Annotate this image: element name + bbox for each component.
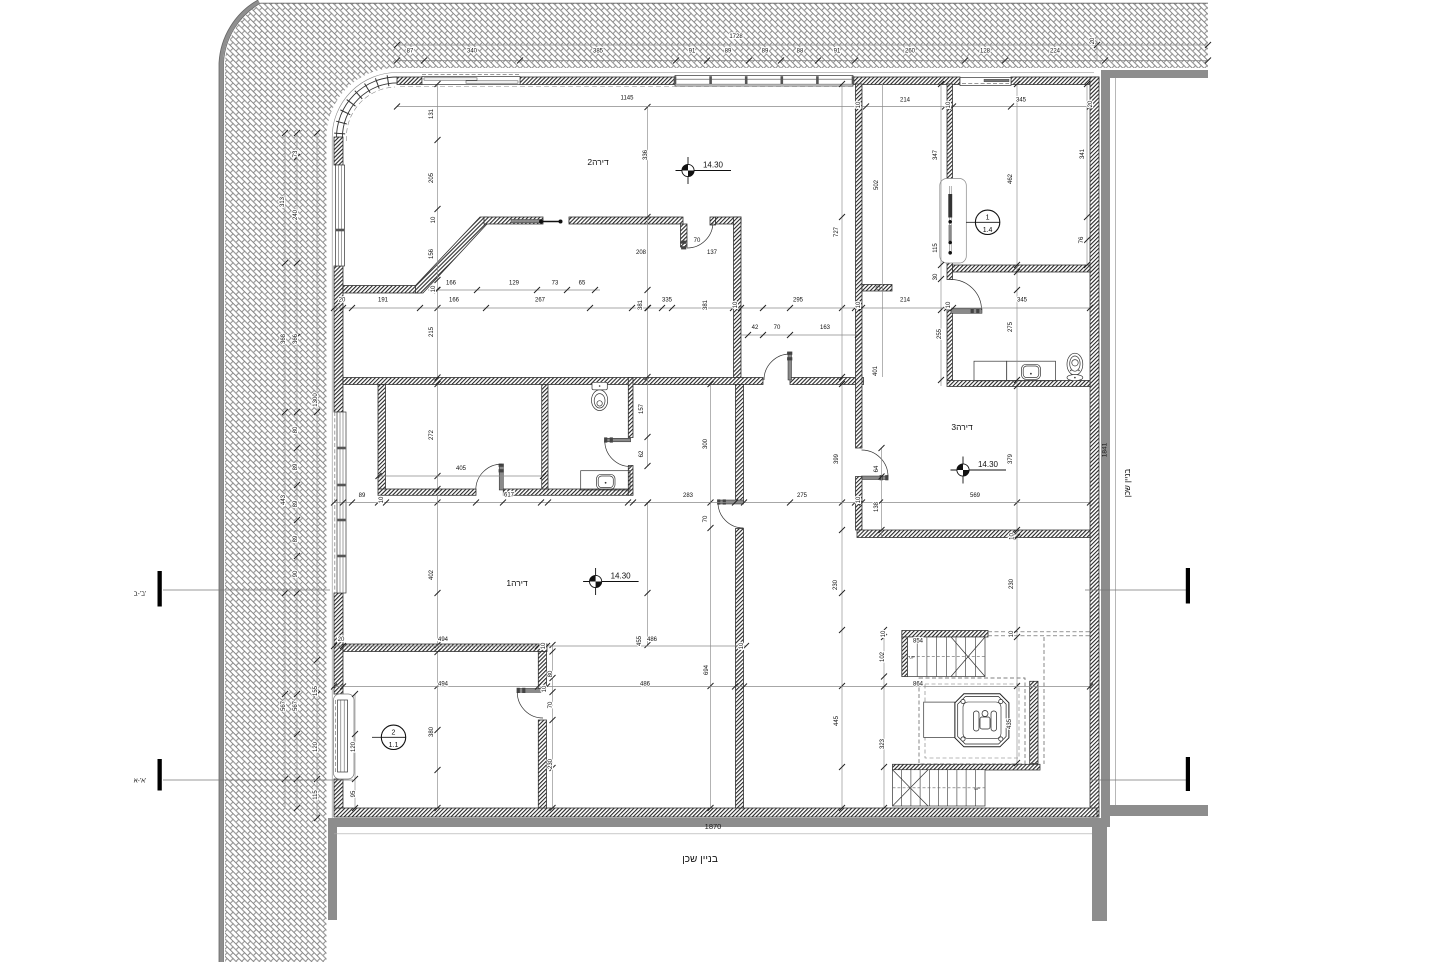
svg-text:10: 10	[431, 216, 437, 223]
svg-text:10: 10	[1009, 630, 1015, 637]
svg-text:1.4: 1.4	[983, 227, 993, 234]
svg-text:1300: 1300	[313, 393, 319, 407]
svg-text:87: 87	[407, 49, 414, 55]
svg-text:128: 128	[980, 49, 991, 55]
svg-text:89: 89	[293, 463, 299, 470]
svg-text:1870: 1870	[705, 822, 722, 831]
svg-text:694: 694	[704, 664, 710, 675]
svg-text:1145: 1145	[621, 96, 635, 102]
svg-text:345: 345	[1016, 98, 1027, 104]
svg-text:230: 230	[833, 579, 839, 590]
svg-text:20: 20	[1090, 37, 1096, 44]
svg-text:166: 166	[449, 298, 460, 304]
svg-text:10: 10	[881, 630, 887, 637]
svg-text:10: 10	[856, 496, 862, 503]
svg-text:381: 381	[638, 299, 644, 310]
svg-text:335: 335	[662, 298, 673, 304]
svg-text:1841: 1841	[1102, 442, 1109, 457]
svg-text:14.30: 14.30	[703, 161, 724, 170]
svg-text:89: 89	[359, 493, 366, 499]
svg-text:20: 20	[339, 298, 346, 304]
svg-text:102: 102	[880, 651, 886, 662]
svg-text:864: 864	[913, 682, 924, 688]
svg-text:ב'-ב': ב'-ב'	[134, 591, 146, 598]
svg-text:בניין שכן: בניין שכן	[682, 854, 718, 865]
svg-text:567: 567	[293, 700, 299, 711]
svg-text:3דירה: 3דירה	[951, 422, 973, 432]
svg-text:336: 336	[643, 149, 649, 160]
svg-text:70: 70	[694, 238, 701, 244]
svg-text:2: 2	[392, 729, 396, 736]
svg-text:272: 272	[429, 429, 435, 440]
svg-text:617: 617	[504, 493, 515, 499]
svg-text:443: 443	[281, 494, 287, 505]
svg-text:2דירה: 2דירה	[587, 157, 609, 167]
svg-text:445: 445	[834, 715, 840, 726]
svg-text:10: 10	[739, 642, 745, 649]
svg-text:275: 275	[1008, 321, 1014, 332]
svg-text:10: 10	[379, 496, 385, 503]
svg-text:65: 65	[579, 281, 586, 287]
svg-text:366: 366	[293, 333, 299, 344]
svg-text:341: 341	[1080, 148, 1086, 159]
svg-text:138: 138	[874, 501, 880, 512]
svg-text:10: 10	[946, 101, 952, 108]
svg-text:129: 129	[509, 281, 520, 287]
svg-text:435: 435	[1007, 718, 1013, 729]
svg-text:163: 163	[820, 325, 831, 331]
svg-text:70: 70	[774, 325, 781, 331]
svg-text:240: 240	[293, 209, 299, 220]
svg-text:131: 131	[429, 108, 435, 119]
svg-text:10: 10	[733, 301, 739, 308]
svg-text:120: 120	[351, 741, 357, 752]
svg-text:205: 205	[429, 172, 435, 183]
svg-text:95: 95	[351, 790, 357, 797]
svg-text:1728: 1728	[729, 34, 743, 40]
svg-text:401: 401	[873, 365, 879, 376]
svg-text:486: 486	[647, 637, 658, 643]
svg-text:155: 155	[313, 685, 319, 696]
svg-text:283: 283	[683, 493, 694, 499]
svg-text:76: 76	[1079, 236, 1085, 243]
svg-text:166: 166	[446, 281, 457, 287]
svg-text:230: 230	[1009, 578, 1015, 589]
svg-text:260: 260	[905, 49, 916, 55]
svg-text:30: 30	[933, 273, 939, 280]
svg-text:91: 91	[689, 49, 696, 55]
svg-text:494: 494	[438, 637, 449, 643]
svg-text:42: 42	[752, 325, 759, 331]
svg-text:494: 494	[438, 682, 449, 688]
svg-text:345: 345	[1017, 298, 1028, 304]
svg-text:405: 405	[456, 466, 467, 472]
svg-text:380: 380	[429, 726, 435, 737]
svg-text:156: 156	[429, 248, 435, 259]
svg-text:137: 137	[707, 250, 718, 256]
svg-text:115: 115	[313, 790, 319, 800]
svg-text:340: 340	[467, 49, 478, 55]
svg-text:347: 347	[933, 149, 939, 160]
svg-text:10: 10	[541, 642, 547, 649]
svg-text:62: 62	[639, 450, 645, 457]
svg-text:385: 385	[593, 49, 604, 55]
svg-text:727: 727	[834, 226, 840, 237]
svg-text:854: 854	[913, 639, 924, 645]
svg-text:230: 230	[548, 758, 554, 769]
svg-text:73: 73	[293, 150, 299, 157]
svg-text:בניין שכן: בניין שכן	[1123, 469, 1132, 498]
svg-text:10: 10	[946, 301, 952, 308]
svg-text:10: 10	[856, 301, 862, 308]
svg-text:89: 89	[293, 535, 299, 542]
svg-text:214: 214	[900, 98, 911, 104]
svg-text:455: 455	[637, 635, 643, 646]
svg-text:157: 157	[639, 403, 645, 414]
svg-text:14.30: 14.30	[611, 572, 632, 581]
svg-text:1: 1	[986, 214, 990, 221]
svg-text:214: 214	[900, 298, 911, 304]
svg-text:89: 89	[725, 49, 732, 55]
svg-text:10: 10	[1010, 533, 1016, 540]
svg-text:73: 73	[552, 281, 559, 287]
svg-text:120: 120	[313, 741, 319, 752]
svg-text:295: 295	[793, 298, 804, 304]
svg-text:90: 90	[293, 570, 299, 577]
svg-text:208: 208	[636, 250, 647, 256]
svg-text:88: 88	[797, 49, 804, 55]
svg-text:300: 300	[703, 438, 709, 449]
svg-text:1דירה: 1דירה	[506, 578, 528, 588]
svg-text:64: 64	[874, 465, 880, 472]
svg-text:502: 502	[874, 179, 880, 190]
svg-text:70: 70	[548, 701, 554, 708]
svg-text:567: 567	[281, 700, 287, 711]
svg-text:368: 368	[281, 333, 287, 344]
svg-text:191: 191	[378, 298, 389, 304]
svg-text:379: 379	[1008, 453, 1014, 464]
svg-text:486: 486	[640, 682, 651, 688]
svg-text:20: 20	[1088, 100, 1094, 107]
svg-text:275: 275	[797, 493, 808, 499]
svg-text:215: 215	[429, 326, 435, 337]
svg-text:80: 80	[548, 670, 554, 677]
svg-text:224: 224	[1050, 49, 1061, 55]
svg-text:70: 70	[703, 515, 709, 522]
svg-text:89: 89	[293, 500, 299, 507]
svg-text:381: 381	[703, 299, 709, 310]
svg-text:402: 402	[429, 569, 435, 580]
svg-text:255: 255	[937, 328, 943, 339]
svg-text:80: 80	[293, 426, 299, 433]
svg-text:462: 462	[1008, 173, 1014, 184]
svg-text:313: 313	[280, 196, 286, 207]
svg-text:569: 569	[970, 493, 981, 499]
svg-text:323: 323	[880, 738, 886, 749]
svg-text:UP: UP	[909, 655, 915, 660]
svg-text:399: 399	[834, 453, 840, 464]
svg-text:267: 267	[535, 298, 546, 304]
svg-text:20: 20	[338, 637, 345, 643]
svg-text:1.1: 1.1	[389, 742, 399, 749]
svg-text:10: 10	[856, 101, 862, 108]
svg-text:10: 10	[431, 285, 437, 292]
svg-text:89: 89	[762, 49, 769, 55]
svg-text:115: 115	[933, 243, 939, 253]
svg-text:UP: UP	[974, 786, 980, 791]
svg-text:10: 10	[542, 685, 548, 692]
svg-text:91: 91	[834, 49, 841, 55]
svg-text:א'-א': א'-א'	[134, 778, 147, 785]
svg-text:14.30: 14.30	[978, 460, 999, 469]
